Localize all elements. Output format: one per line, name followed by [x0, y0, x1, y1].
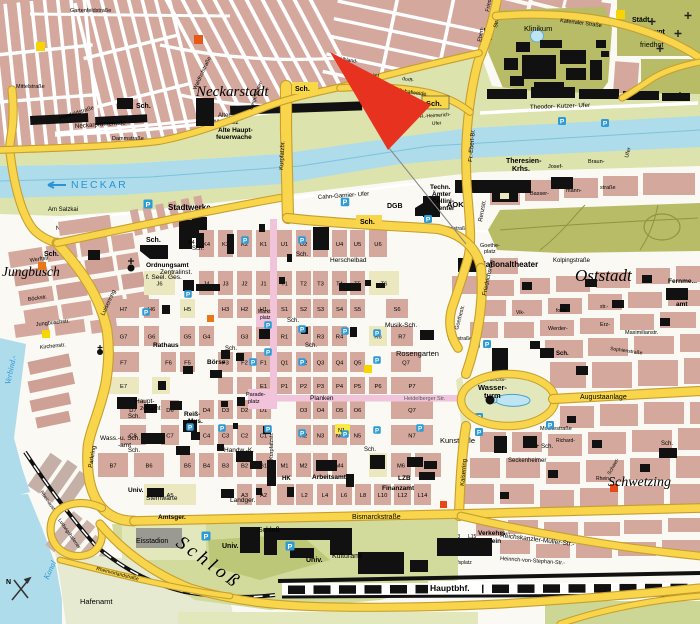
svg-text:G5: G5 [184, 334, 192, 340]
svg-text:Hafenamt: Hafenamt [80, 597, 113, 606]
svg-text:Gartenfeldstraße: Gartenfeldstraße [70, 8, 111, 14]
svg-text:Q3: Q3 [317, 360, 325, 366]
svg-text:Theresien-: Theresien- [506, 158, 542, 165]
svg-text:Börse: Börse [207, 359, 226, 366]
svg-text:E7: E7 [120, 384, 127, 390]
svg-text:Univ.: Univ. [306, 557, 323, 564]
svg-text:Reiß-: Reiß- [184, 411, 200, 418]
svg-text:P: P [477, 430, 482, 437]
svg-text:Landger.: Landger. [230, 497, 255, 504]
svg-text:Q1: Q1 [281, 360, 289, 366]
svg-text:Dammstraße: Dammstraße [112, 136, 144, 142]
svg-text:Sch.: Sch. [661, 441, 673, 447]
svg-text:feuerwache: feuerwache [216, 134, 252, 141]
svg-text:str.-: str.- [600, 304, 609, 310]
svg-text:Städt.: Städt. [632, 17, 652, 24]
svg-text:platz: platz [248, 399, 260, 405]
svg-text:G7: G7 [120, 334, 128, 340]
svg-text:amt: amt [676, 301, 688, 308]
svg-text:B2: B2 [241, 463, 248, 469]
svg-text:L12: L12 [398, 493, 408, 499]
svg-text:P: P [560, 119, 565, 126]
svg-text:Seckenheimer: Seckenheimer [508, 458, 546, 464]
svg-text:P: P [188, 424, 192, 431]
svg-text:HK: HK [282, 476, 291, 482]
svg-text:C7: C7 [166, 433, 173, 439]
svg-text:Techn.: Techn. [430, 184, 451, 191]
svg-text:P: P [146, 200, 151, 209]
svg-text:Am Salzkai: Am Salzkai [48, 207, 78, 213]
svg-text:G4: G4 [203, 334, 212, 340]
svg-text:K1: K1 [260, 242, 267, 248]
svg-text:O5: O5 [336, 408, 344, 414]
svg-text:S3: S3 [317, 307, 324, 313]
svg-text:zollamt: zollamt [140, 405, 161, 412]
svg-text:Sch.: Sch. [295, 86, 310, 93]
svg-text:M6: M6 [397, 463, 405, 469]
svg-text:P: P [186, 291, 190, 298]
svg-text:Herschelbad: Herschelbad [330, 257, 367, 264]
svg-text:Univ.: Univ. [222, 543, 239, 550]
svg-text:Ämter: Ämter [432, 190, 451, 198]
svg-text:Sch.: Sch. [146, 237, 161, 244]
svg-text:Rathaus: Rathaus [153, 342, 179, 349]
svg-text:P: P [144, 309, 148, 316]
svg-text:Kunsthalle: Kunsthalle [440, 436, 475, 445]
svg-text:friedhof: friedhof [640, 42, 663, 49]
svg-text:C2: C2 [241, 433, 248, 439]
svg-text:Josef-: Josef- [548, 164, 563, 170]
svg-text:H3: H3 [222, 307, 229, 313]
svg-text:f. Seel. Ges.: f. Seel. Ges. [146, 274, 182, 281]
svg-text:C4: C4 [203, 433, 211, 439]
svg-text:Kurpfalzstr.: Kurpfalzstr. [269, 432, 275, 460]
svg-text:P: P [266, 349, 270, 356]
svg-text:Wass.-u. Sch.: Wass.-u. Sch. [100, 435, 140, 442]
svg-text:Schwetzing: Schwetzing [608, 475, 671, 490]
svg-text:Q7: Q7 [402, 360, 410, 366]
svg-text:Kulturamt: Kulturamt [332, 553, 362, 560]
svg-text:P: P [220, 425, 224, 432]
svg-text:H5: H5 [184, 307, 191, 313]
svg-text:G6: G6 [148, 334, 156, 340]
svg-text:Sch.: Sch. [136, 103, 151, 110]
svg-text:Kolpingstraße: Kolpingstraße [553, 258, 591, 264]
svg-text:L14: L14 [418, 493, 428, 499]
svg-text:Sch.: Sch. [305, 343, 317, 349]
svg-text:F2: F2 [241, 360, 248, 366]
svg-text:Q7: Q7 [408, 408, 416, 414]
svg-text:J2: J2 [241, 281, 247, 287]
svg-text:Sch.: Sch. [192, 246, 204, 252]
svg-text:P: P [266, 322, 270, 329]
svg-text:Sch.: Sch. [128, 448, 140, 454]
svg-text:P: P [375, 357, 379, 364]
svg-text:F7: F7 [120, 360, 127, 366]
svg-text:Parade-: Parade- [246, 392, 266, 398]
svg-text:AOK: AOK [447, 200, 464, 209]
svg-text:Univ.: Univ. [128, 487, 144, 494]
svg-text:P: P [418, 425, 422, 432]
svg-text:P3: P3 [317, 384, 324, 390]
svg-text:P6: P6 [374, 384, 381, 390]
svg-text:P: P [603, 121, 608, 128]
svg-text:M2: M2 [299, 463, 307, 469]
svg-text:Eisstadion: Eisstadion [136, 538, 168, 545]
svg-text:O4: O4 [317, 408, 326, 414]
svg-text:Ordnungsamt: Ordnungsamt [146, 262, 189, 269]
svg-text:Sch.: Sch. [360, 219, 375, 226]
svg-text:NECKAR: NECKAR [71, 179, 128, 191]
svg-text:D4: D4 [203, 408, 211, 414]
svg-text:U1: U1 [281, 242, 288, 248]
svg-text:Klinikum: Klinikum [524, 24, 552, 33]
svg-text:Finanzamt: Finanzamt [382, 485, 415, 492]
svg-text:Mittelstraße: Mittelstraße [16, 84, 45, 90]
svg-text:Q4: Q4 [336, 360, 345, 366]
svg-text:P: P [375, 330, 379, 337]
svg-text:Sch.: Sch. [287, 318, 299, 324]
svg-text:Sch.: Sch. [296, 252, 308, 258]
svg-text:L2: L2 [301, 493, 307, 499]
svg-text:P: P [343, 431, 347, 438]
svg-text:P: P [343, 200, 348, 207]
svg-text:Erz-: Erz- [600, 322, 610, 328]
svg-text:U5: U5 [354, 242, 361, 248]
svg-text:Basser-: Basser- [530, 191, 549, 197]
svg-text:P: P [548, 423, 553, 430]
svg-text:Krhs.: Krhs. [512, 166, 530, 173]
svg-text:P: P [343, 328, 347, 335]
svg-text:B6: B6 [145, 463, 152, 469]
svg-text:T2: T2 [300, 281, 307, 287]
svg-text:F5: F5 [184, 360, 191, 366]
svg-text:straße: straße [600, 185, 616, 191]
svg-text:K4: K4 [203, 242, 211, 248]
svg-text:Sch.: Sch. [128, 414, 140, 420]
svg-text:H2: H2 [241, 307, 248, 313]
svg-text:Sch.: Sch. [556, 351, 569, 357]
svg-text:S6: S6 [393, 307, 400, 313]
svg-text:Neckarstadt: Neckarstadt [195, 84, 269, 100]
svg-text:Werder-: Werder- [548, 326, 568, 332]
svg-text:Amtsger.: Amtsger. [158, 514, 186, 521]
svg-text:Sternwarte: Sternwarte [146, 495, 178, 502]
svg-text:Richard-: Richard- [556, 438, 575, 444]
svg-text:P: P [243, 237, 247, 244]
svg-text:Braun-: Braun- [588, 159, 605, 165]
svg-text:Sch.: Sch. [44, 251, 59, 258]
svg-text:B5: B5 [184, 463, 191, 469]
svg-text:Moltkestraße: Moltkestraße [540, 426, 572, 432]
svg-text:Ufer: Ufer [432, 120, 442, 127]
svg-text:Schloß: Schloß [258, 527, 280, 534]
svg-text:P: P [375, 427, 379, 434]
svg-text:J6: J6 [156, 281, 162, 287]
svg-text:P1: P1 [281, 384, 288, 390]
svg-text:R1: R1 [281, 334, 288, 340]
svg-text:C1: C1 [260, 433, 267, 439]
svg-text:LZB: LZB [398, 475, 411, 482]
svg-text:P: P [266, 426, 270, 433]
svg-text:Hauptbhf.: Hauptbhf. [430, 583, 470, 593]
svg-text:N: N [6, 579, 11, 586]
svg-text:Haupt-: Haupt- [135, 398, 155, 405]
svg-text:mann-: mann- [566, 188, 582, 194]
svg-text:S4: S4 [336, 307, 344, 313]
svg-text:D2: D2 [241, 408, 248, 414]
svg-text:P: P [288, 542, 293, 551]
svg-text:P7: P7 [408, 384, 415, 390]
svg-text:G3: G3 [241, 334, 249, 340]
svg-text:Bismarckstraße: Bismarckstraße [352, 514, 401, 521]
svg-text:Arbeitsamt: Arbeitsamt [312, 474, 347, 481]
svg-text:F1: F1 [260, 360, 267, 366]
svg-text:Musik-Sch.: Musik-Sch. [385, 322, 417, 329]
svg-text:Augustaanlage: Augustaanlage [580, 394, 627, 401]
svg-text:B3: B3 [222, 463, 229, 469]
svg-text:D3: D3 [222, 408, 229, 414]
svg-text:J1: J1 [260, 281, 266, 287]
svg-text:U6: U6 [374, 242, 381, 248]
svg-text:Vik-: Vik- [516, 310, 525, 316]
svg-text:Jungbusch: Jungbusch [2, 264, 60, 279]
svg-text:P: P [300, 237, 304, 244]
svg-text:X4: X4 [188, 240, 195, 246]
svg-text:B7: B7 [109, 463, 116, 469]
svg-text:P2: P2 [300, 384, 307, 390]
svg-text:P: P [204, 532, 209, 541]
svg-text:P5: P5 [354, 384, 361, 390]
svg-text:L8: L8 [360, 493, 366, 499]
svg-text:P: P [300, 326, 304, 333]
svg-text:F6: F6 [165, 360, 172, 366]
svg-text:P: P [426, 217, 431, 224]
svg-text:Maximilianstr.: Maximilianstr. [625, 330, 659, 336]
svg-text:DGB: DGB [387, 203, 403, 210]
svg-text:B4: B4 [203, 463, 211, 469]
svg-text:P: P [251, 359, 255, 366]
svg-text:H7: H7 [120, 307, 127, 313]
svg-text:S5: S5 [354, 307, 361, 313]
svg-text:Sch.: Sch. [225, 346, 237, 352]
svg-text:O3: O3 [300, 408, 308, 414]
svg-text:platz: platz [484, 249, 496, 255]
svg-text:P: P [300, 359, 304, 366]
svg-text:P4: P4 [336, 384, 344, 390]
svg-text:L10: L10 [378, 493, 388, 499]
svg-text:P: P [300, 430, 304, 437]
svg-text:L6: L6 [341, 493, 347, 499]
svg-text:platz: platz [260, 315, 271, 321]
svg-text:Rosengarten: Rosengarten [396, 349, 439, 358]
svg-text:Heidelberger Str.: Heidelberger Str. [404, 396, 446, 402]
svg-text:Q5: Q5 [354, 360, 362, 366]
svg-text:O6: O6 [354, 408, 362, 414]
svg-text:S2: S2 [300, 307, 307, 313]
svg-text:P: P [485, 342, 490, 349]
svg-text:Planken: Planken [310, 395, 334, 402]
svg-text:foria-: foria- [556, 308, 568, 314]
svg-text:U4: U4 [336, 242, 344, 248]
svg-text:L4: L4 [322, 493, 329, 499]
svg-text:N7: N7 [408, 433, 415, 439]
svg-text:Sch.: Sch. [364, 447, 376, 453]
svg-text:C3: C3 [222, 433, 229, 439]
svg-text:R3: R3 [317, 334, 324, 340]
svg-text:Oststadt: Oststadt [575, 266, 633, 285]
svg-text:Handw.-K.: Handw.-K. [224, 447, 254, 454]
svg-text:Fernme...: Fernme... [668, 278, 697, 285]
svg-text:N3: N3 [317, 433, 324, 439]
svg-text:J3: J3 [222, 281, 228, 287]
svg-text:+ Sch.: + Sch. [536, 444, 554, 450]
svg-text:S1: S1 [281, 307, 288, 313]
svg-text:Alte Haupt-: Alte Haupt- [218, 127, 253, 134]
svg-text:T3: T3 [317, 281, 324, 287]
svg-text:R7: R7 [398, 334, 405, 340]
svg-text:N5: N5 [354, 433, 361, 439]
svg-text:M1: M1 [280, 463, 288, 469]
svg-text:turm: turm [484, 391, 501, 400]
